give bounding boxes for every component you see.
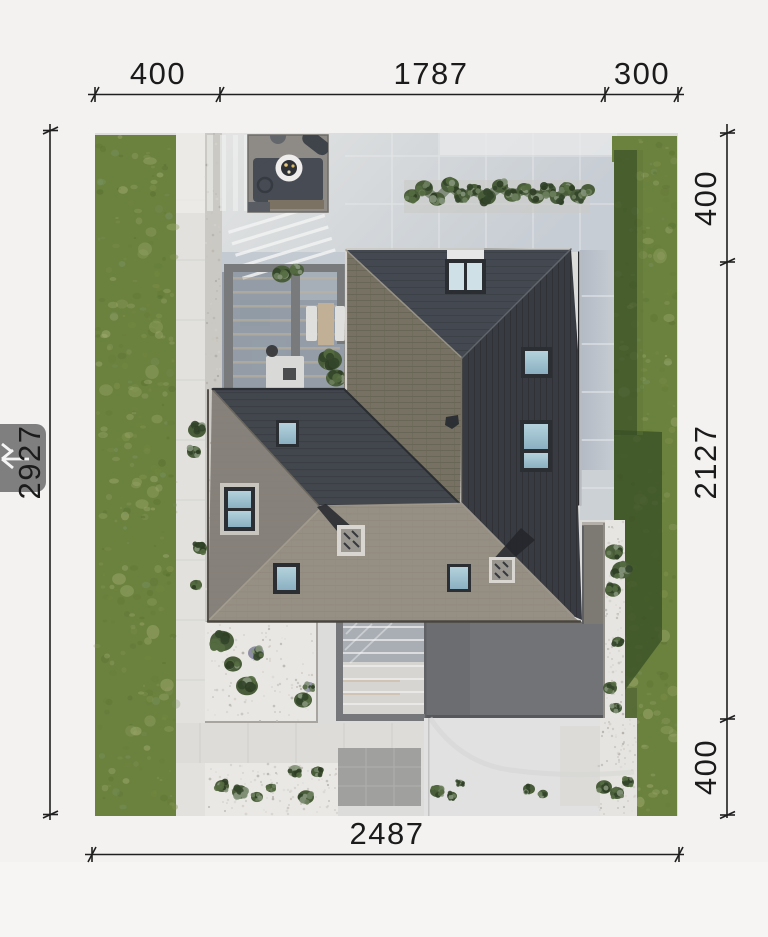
svg-text:400: 400	[130, 56, 186, 91]
svg-text:1787: 1787	[394, 56, 469, 91]
svg-text:2927: 2927	[12, 425, 47, 500]
svg-text:2127: 2127	[688, 425, 723, 500]
svg-text:300: 300	[614, 56, 670, 91]
svg-text:2487: 2487	[350, 816, 425, 851]
svg-text:400: 400	[688, 170, 723, 226]
svg-text:400: 400	[688, 739, 723, 795]
